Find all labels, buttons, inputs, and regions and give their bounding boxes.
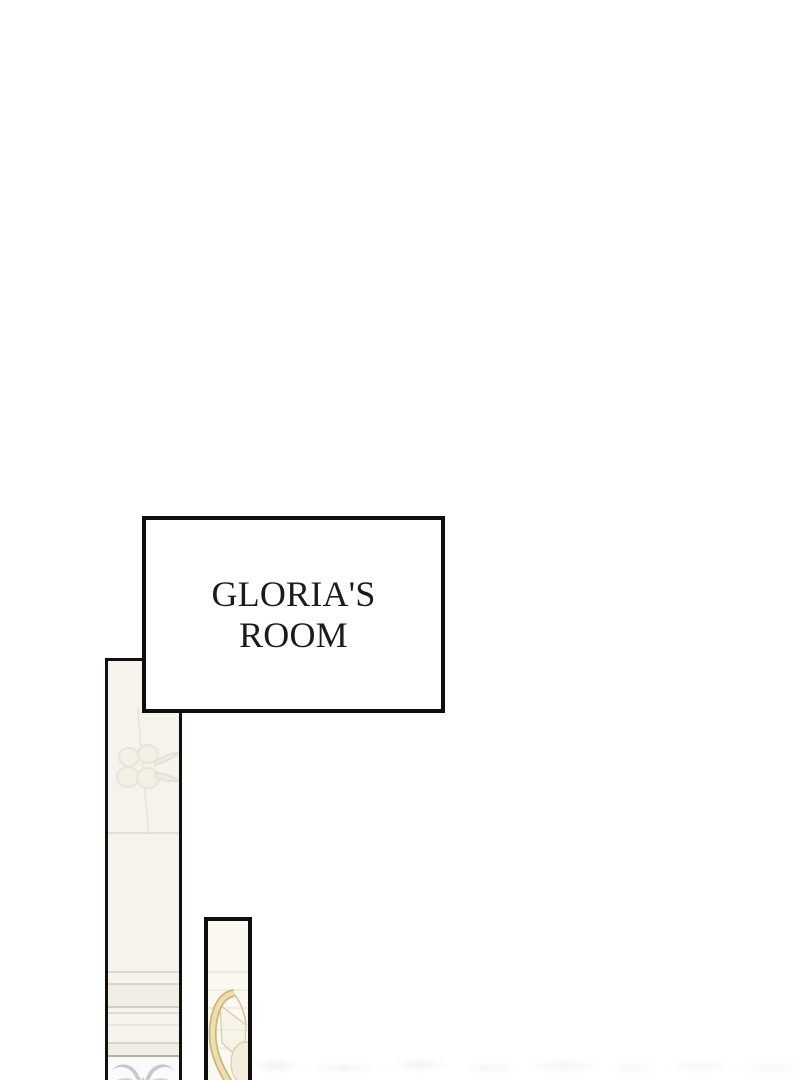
- room-label-line1: GLORIA'S: [211, 574, 375, 614]
- room-label-line2: ROOM: [239, 615, 348, 655]
- room-label-box: GLORIA'S ROOM: [142, 516, 445, 713]
- left-wall-panel: [105, 658, 182, 1080]
- right-post-ornament-graphic: [208, 921, 248, 1080]
- right-post-panel: [204, 917, 252, 1080]
- room-label-text: GLORIA'S ROOM: [211, 574, 375, 656]
- left-wall-ornament-graphic: [108, 661, 179, 1080]
- panel-lines: [108, 833, 179, 1056]
- damask-icon: [108, 1058, 179, 1080]
- comic-panel-canvas: GLORIA'S ROOM: [0, 0, 800, 1080]
- flower-icon: [117, 709, 179, 833]
- faint-watermark-band: [252, 1046, 800, 1080]
